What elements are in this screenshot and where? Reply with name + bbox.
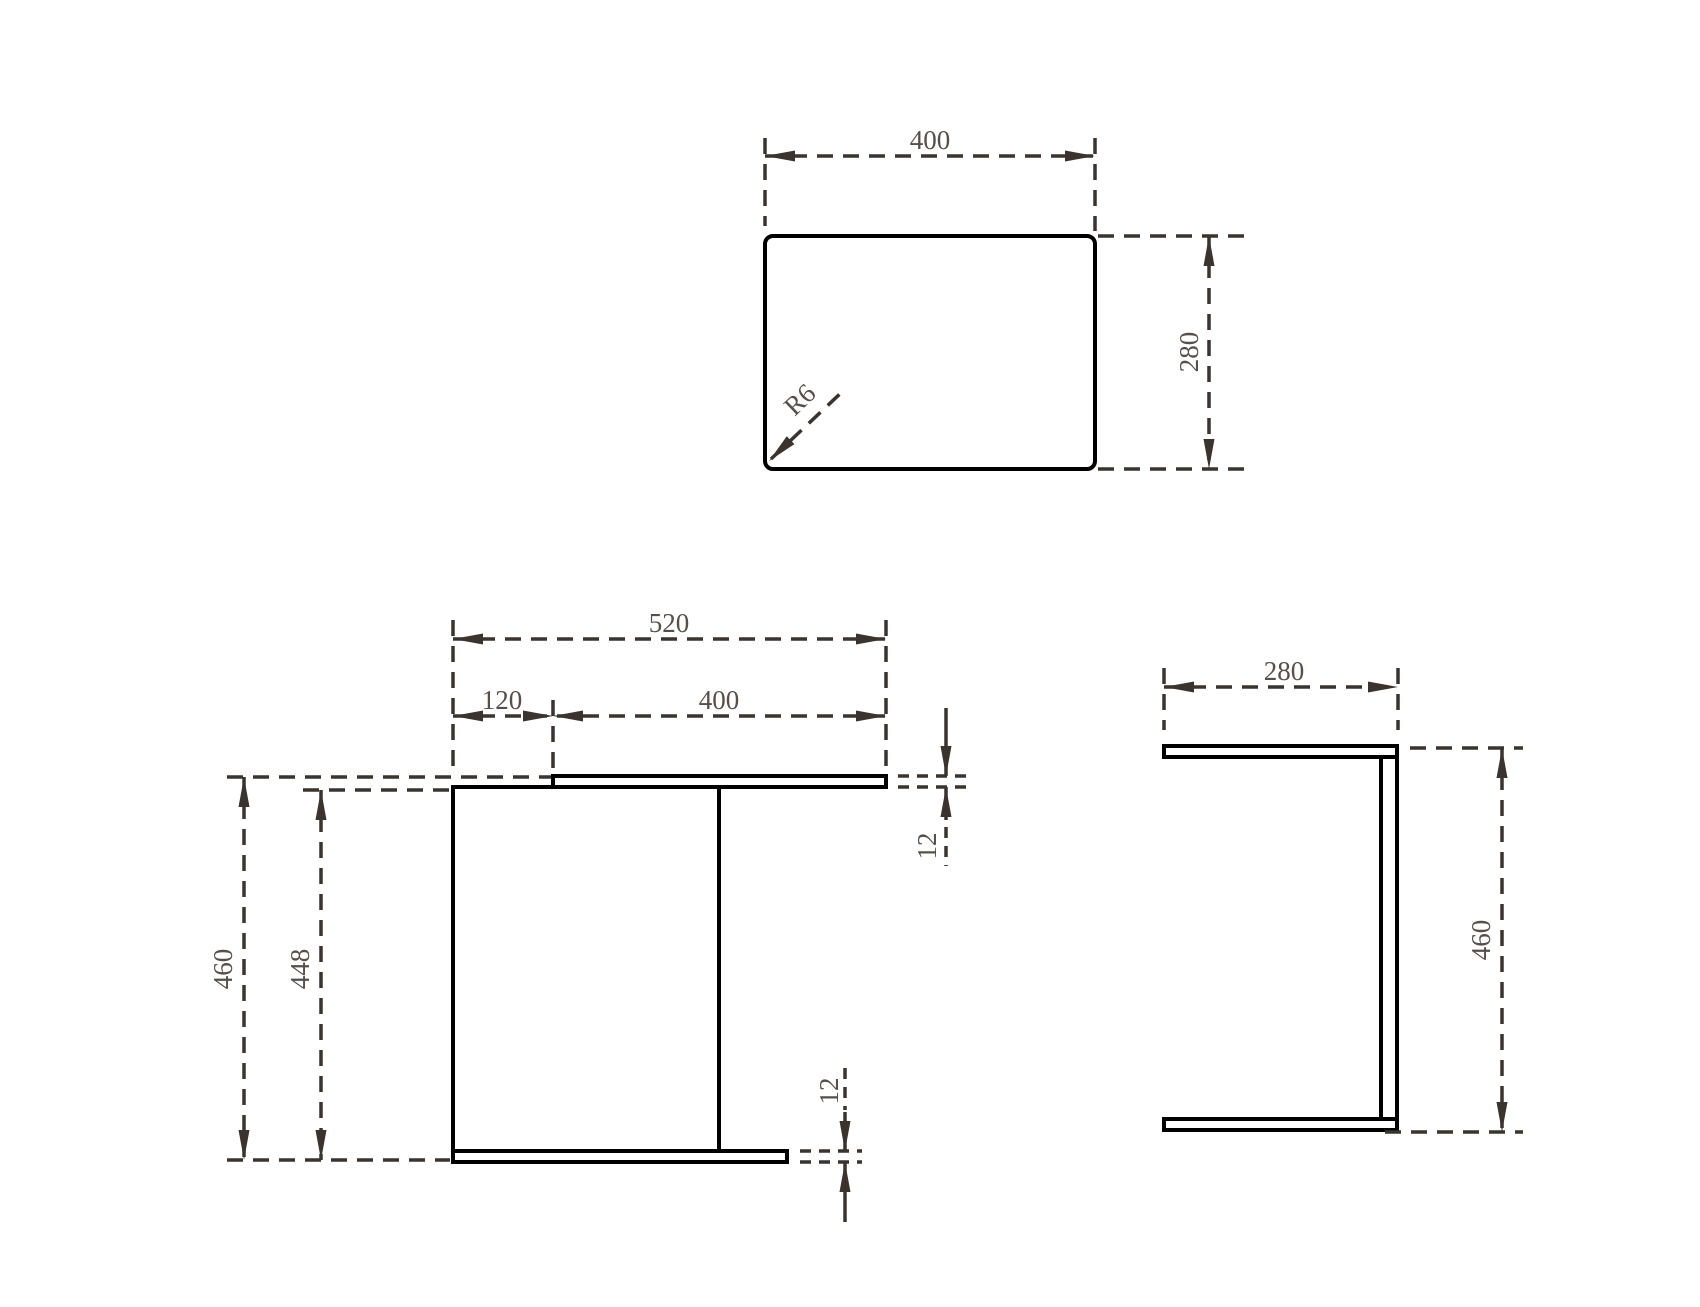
front-view-dim-overhang-and-top-width: 120 400 (453, 685, 886, 774)
dim-label-side-height: 460 (1466, 920, 1496, 961)
front-view: 520 120 400 460 448 (208, 608, 966, 1222)
leader-arrow-icon (765, 436, 794, 465)
dim-label-bottom-thickness: 12 (814, 1078, 844, 1105)
dim-label-top-thickness: 12 (912, 833, 942, 860)
side-view-dim-height: 460 (1385, 748, 1523, 1132)
side-view-bottom-panel (1164, 1119, 1397, 1130)
front-view-dim-panel-height: 448 (285, 790, 452, 1160)
dim-arrow-left-icon (453, 634, 483, 645)
front-view-dim-overall-height: 460 (208, 777, 551, 1160)
dim-arrow-down-icon (840, 1121, 851, 1151)
dim-arrow-down-icon (941, 746, 952, 776)
dim-arrow-right-icon (1065, 151, 1095, 162)
dim-arrow-up-icon (239, 777, 250, 807)
top-view-dim-width: 400 (765, 125, 1095, 231)
dim-label-side-depth: 280 (1264, 656, 1305, 686)
side-view-back-panel (1381, 757, 1397, 1119)
top-view: 400 280 R6 (765, 125, 1247, 469)
dim-label-top-depth: 280 (1174, 332, 1204, 373)
dim-arrow-down-icon (239, 1130, 250, 1160)
dim-arrow-up-icon (1204, 236, 1215, 266)
dim-arrow-right-icon (523, 711, 553, 722)
drawing-sheet: 400 280 R6 520 (0, 0, 1700, 1307)
dim-label-top-width: 400 (910, 125, 951, 155)
top-view-dim-depth: 280 (1098, 236, 1247, 469)
top-view-outline (765, 236, 1095, 469)
front-view-side-panel (453, 787, 719, 1151)
side-view: 280 460 (1164, 656, 1523, 1132)
front-view-bottom-panel (453, 1151, 787, 1162)
dim-arrow-up-icon (1497, 748, 1508, 778)
technical-drawing-canvas: 400 280 R6 520 (0, 0, 1700, 1307)
dim-arrow-right-icon (1368, 682, 1398, 693)
front-view-dim-top-thickness: 12 (898, 708, 966, 866)
dim-arrow-up-icon (316, 790, 327, 820)
dim-label-overhang: 120 (482, 685, 523, 715)
dim-label-overall-width: 520 (649, 608, 690, 638)
dim-arrow-left-icon (553, 711, 583, 722)
dim-arrow-left-icon (453, 711, 483, 722)
front-view-dim-bottom-thickness: 12 (800, 1068, 862, 1222)
dim-label-top-width: 400 (699, 685, 740, 715)
dim-arrow-up-icon (941, 787, 952, 817)
top-view-corner-radius-callout: R6 (765, 378, 843, 465)
dim-arrow-up-icon (840, 1162, 851, 1192)
dim-label-corner-radius: R6 (778, 378, 822, 421)
dim-arrow-left-icon (765, 151, 795, 162)
dim-arrow-right-icon (856, 711, 886, 722)
dim-label-overall-height: 460 (208, 949, 238, 990)
dim-arrow-down-icon (1497, 1102, 1508, 1132)
dim-arrow-left-icon (1164, 682, 1194, 693)
side-view-top-panel (1164, 746, 1397, 757)
side-view-dim-depth: 280 (1164, 656, 1398, 730)
dim-label-panel-height: 448 (285, 949, 315, 990)
dim-arrow-right-icon (856, 634, 886, 645)
dim-arrow-down-icon (1204, 439, 1215, 469)
dim-arrow-down-icon (316, 1130, 327, 1160)
